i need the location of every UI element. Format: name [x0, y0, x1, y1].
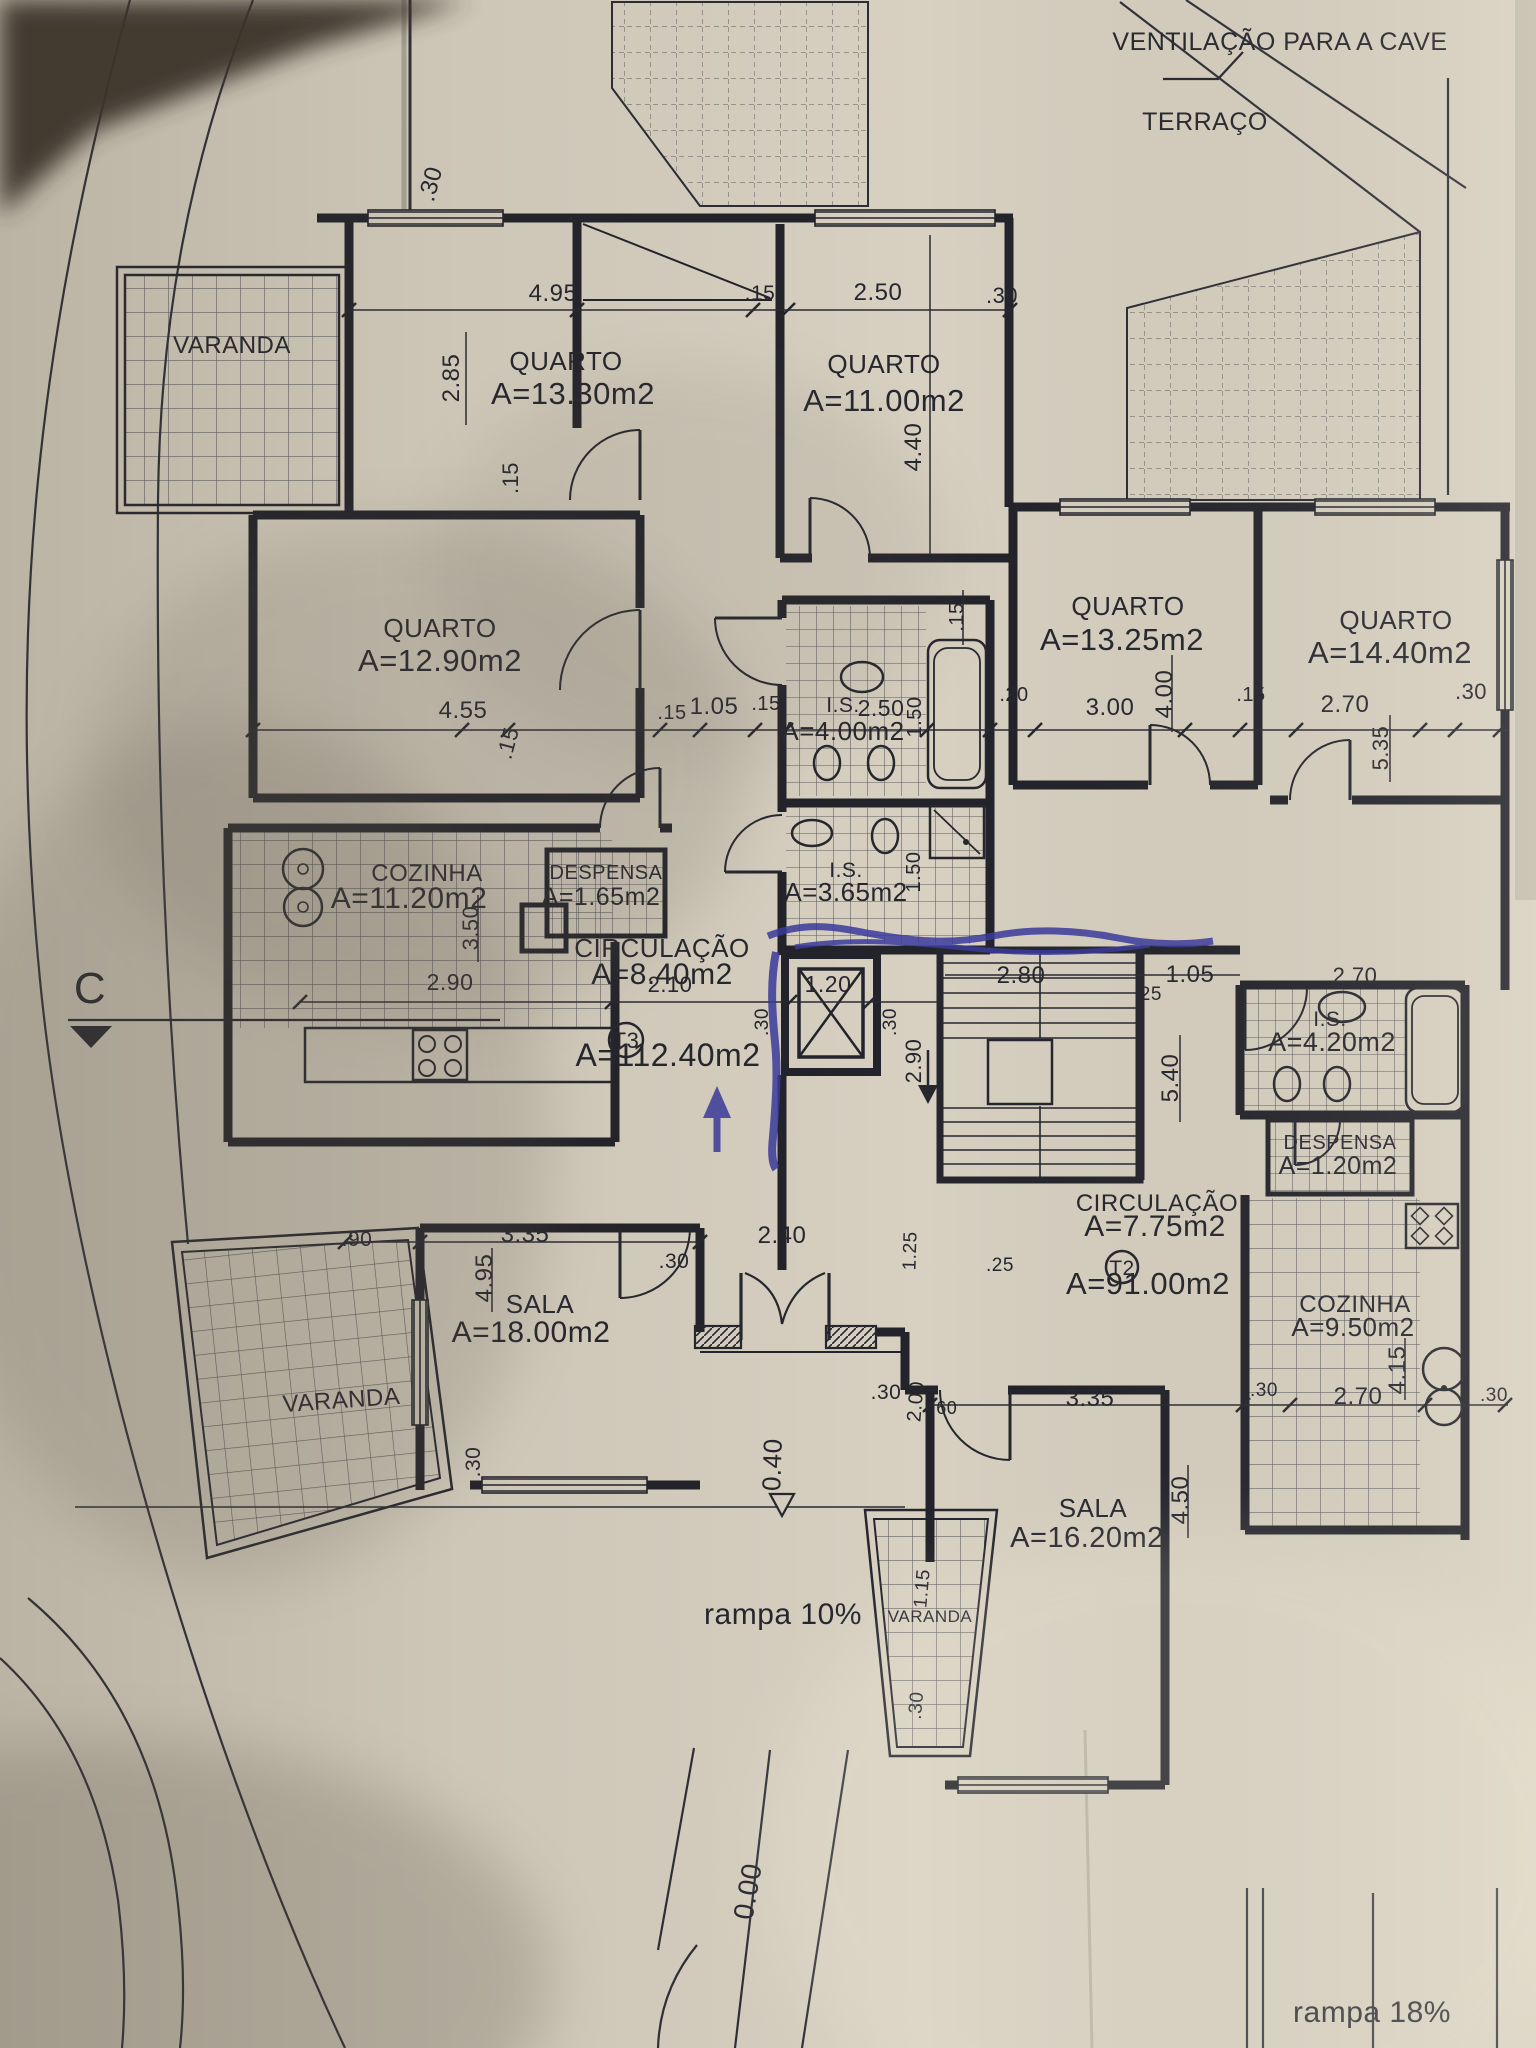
photo-shadows [0, 0, 1536, 2048]
floor-plan-photo: VARANDA QUARTO A=13.30m2 QUARTO A=11.00m… [0, 0, 1536, 2048]
floor-plan-canvas: VARANDA QUARTO A=13.30m2 QUARTO A=11.00m… [0, 0, 1536, 2048]
